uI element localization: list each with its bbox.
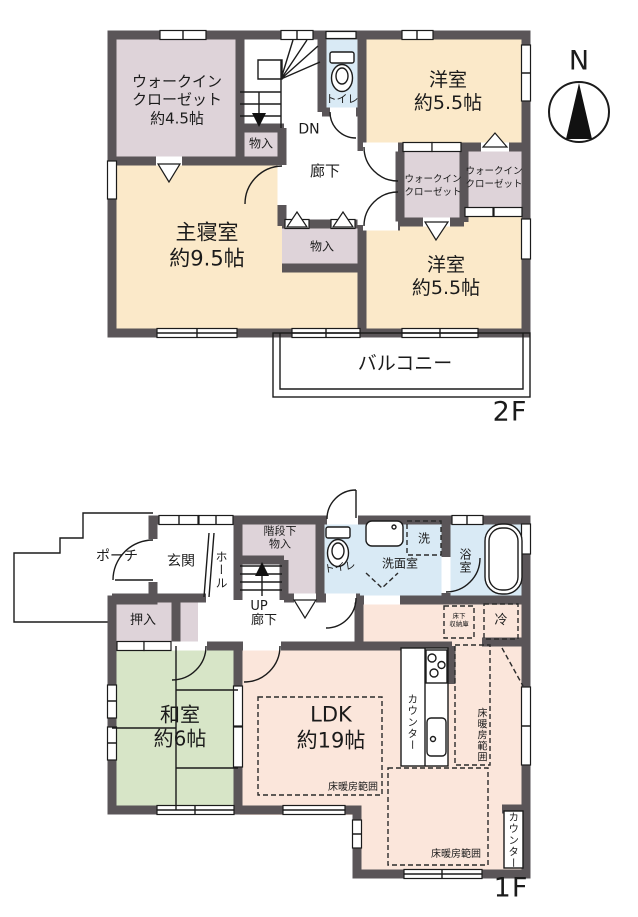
compass-icon xyxy=(549,82,609,142)
bathtub-icon xyxy=(485,524,522,594)
balcony-outline xyxy=(273,333,530,397)
east-counter xyxy=(504,811,523,868)
toilet-icon-1f xyxy=(326,527,350,567)
stairs-up xyxy=(240,562,282,596)
floorplan-graphics xyxy=(0,0,638,917)
kitchen-counter xyxy=(401,648,448,766)
floor1-plan xyxy=(14,490,531,879)
floor2-plan xyxy=(108,31,532,398)
sink-icon xyxy=(366,521,403,546)
floorplan-canvas: ウォークイン クローゼット 約4.5帖 物入 トイレ DN 廊下 洋室 約5.5… xyxy=(0,0,638,917)
toilet-icon-2f xyxy=(330,52,354,92)
